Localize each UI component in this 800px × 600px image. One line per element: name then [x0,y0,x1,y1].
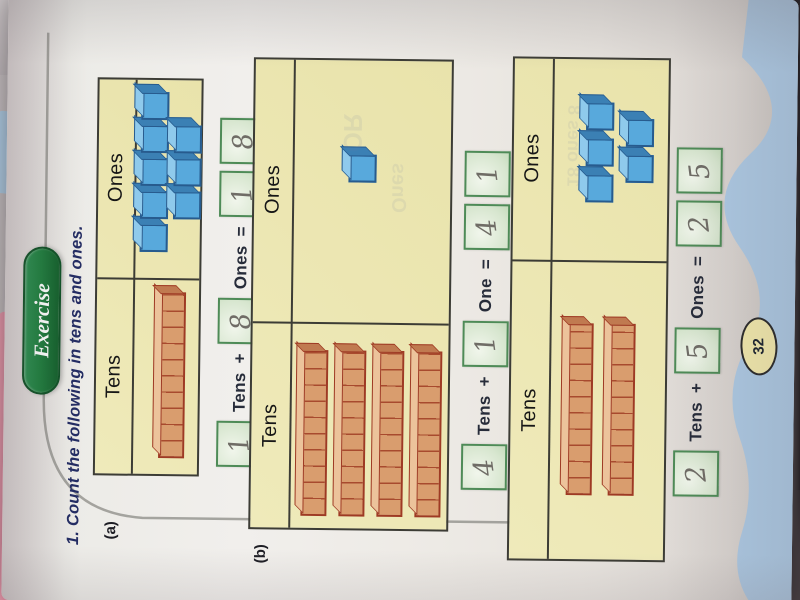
answer-box: 2 [673,450,720,497]
plus-sign: + [475,376,495,386]
answer-box: 5 [676,148,723,195]
table-body [133,80,202,475]
exercise-title: 1. Count the following in tens and ones. [64,225,87,545]
one-cube [173,191,201,219]
ones-header-label: Ones [105,153,129,202]
handwritten-digit: 4 [467,457,500,478]
ones-word: Ones [231,245,252,289]
problem-label-b: (b) [252,544,269,563]
equals-sign: = [232,226,252,236]
book-page: Exercise 1. Count the following in tens … [1,0,798,600]
ones-word: One [476,278,496,312]
one-cube [140,158,168,186]
ones-header-label: Ones [262,165,286,214]
handwritten-digit: 2 [682,213,715,234]
one-cube [141,125,169,153]
photo-of-textbook-page: 2. Ma Exercise 1. Count the following in… [0,0,800,600]
tens-header-label: Tens [102,355,126,399]
tens-word: Tens [686,402,706,442]
equals-sign: = [688,256,708,266]
equals-sign: = [476,259,496,269]
exercise-badge: Exercise [22,246,62,394]
handwritten-digit: 2 [679,463,712,484]
one-cube [348,154,376,182]
result-boxes: 25 [676,148,723,248]
tens-cell [133,280,199,475]
ten-rod [338,350,366,516]
handwritten-digit: 5 [681,340,714,361]
handwritten-digit: 4 [470,217,503,238]
ghost-text-container: OROnes18 ones 8 [1,0,8,600]
ones-cell [293,60,452,324]
answer-box: 1 [464,151,511,198]
ghost-showthrough-text: Ones [386,163,410,213]
tens-header-label: Tens [259,404,283,448]
answer-box: 4 [464,204,511,251]
ten-rod [414,351,442,517]
ten-rod [608,324,636,496]
page-footer-wave [713,0,798,600]
problem-c-table: TensOnes [507,56,671,562]
ones-word: Ones [688,275,709,319]
answer-box: 4 [461,444,508,491]
problem-label-a: (a) [102,521,119,540]
ghost-showthrough-text: 18 ones 8 [562,105,584,187]
plus-sign: + [687,383,707,393]
ten-rod [158,292,186,458]
handwritten-digit: 5 [683,160,716,181]
result-boxes: 41 [464,151,511,251]
one-cube [585,174,613,202]
ones-cell [135,80,201,279]
ten-rod [376,351,404,517]
one-cube [625,155,653,183]
tens-cell [290,324,448,530]
one-cube [140,224,168,252]
one-cube [140,191,168,219]
one-cube [586,138,614,166]
ones-header-label: Ones [521,133,545,182]
tens-word: Tens [474,395,494,435]
ten-rod [566,323,594,495]
problems-container: (a)TensOnes1Tens+8Ones=18(b)TensOnes4Ten… [1,0,8,600]
table-header-row: TensOnes [509,58,555,558]
answer-box: 1 [462,321,509,368]
one-cube [174,125,202,153]
one-cube [626,119,654,147]
problem-a-table: TensOnes [93,77,204,476]
tens-cell [549,262,667,560]
one-cube [586,102,614,130]
ten-rod [300,350,328,516]
tens-header-label: Tens [518,388,542,432]
answer-box: 5 [674,327,721,374]
table-body [290,60,452,530]
one-cube [141,92,169,120]
handwritten-digit: 1 [469,334,502,355]
one-cube [173,158,201,186]
plus-sign: + [230,353,250,363]
answer-box: 2 [676,201,723,248]
ghost-showthrough-text: OR [337,113,368,152]
tens-word: Tens [230,372,250,412]
handwritten-digit: 1 [471,164,504,185]
table-header-row: TensOnes [250,59,296,527]
answer-row-b: 4Tens+1One=41 [461,151,511,491]
